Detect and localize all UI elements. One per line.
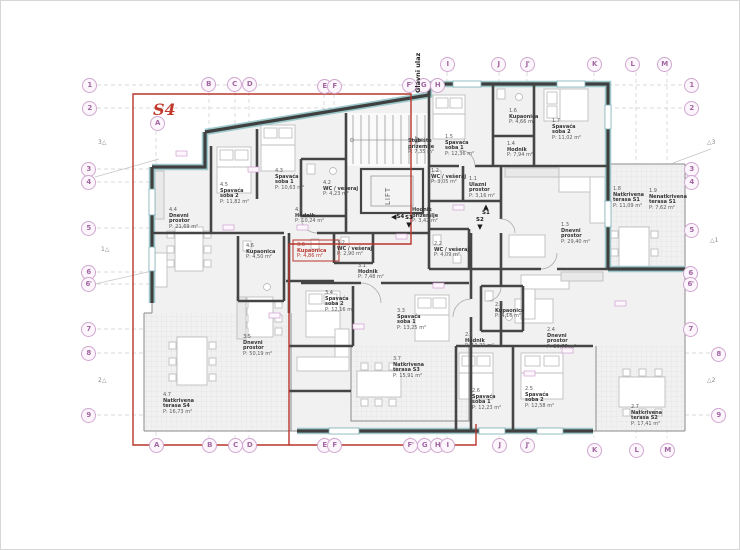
grid-number-8: 8 (711, 347, 726, 362)
grid-letter-J': J' (520, 57, 535, 72)
room-label-1.9: 1.9Nenatkrivena terasa S1P: 7,62 m² (649, 189, 685, 211)
room-label-1.1: 1.1Ulazni prostorP: 3,16 m² (469, 177, 505, 199)
section-marker-2: 2△ (98, 377, 106, 384)
unit-entrance-S1: ▲S1 (482, 204, 490, 217)
grid-number-2: 2 (82, 101, 97, 116)
grid-letter-J': J' (520, 438, 535, 453)
grid-letter-F': F' (403, 438, 418, 453)
room-label-1.8: 1.8Natkrivena terasa S1P: 11,09 m² (613, 187, 649, 209)
room-label-4.4: 4.4Dnevni prostorP: 21,69 m² (169, 208, 205, 230)
room-label-4.1: 4.1HodnikP: 10,24 m² (295, 208, 324, 225)
room-label-3.2: 3.2WC / vešerajP: 2,90 m² (337, 241, 372, 258)
grid-letter-M: M (660, 443, 675, 458)
grid-number-2: 2 (684, 101, 699, 116)
room-label-3.3: 3.3Spavaća soba 1P: 13,25 m² (397, 309, 433, 331)
grid-number-6': 6' (81, 277, 96, 292)
room-label-2.5: 2.5Spavaća soba 2P: 12,58 m² (525, 387, 561, 409)
room-label-2.4: 2.4Dnevni prostorP: 30,77 m² (547, 328, 583, 350)
grid-number-4: 4 (81, 175, 96, 190)
room-label-2.6: 2.6Spavaća soba 1P: 12,23 m² (472, 389, 508, 411)
grid-number-1: 1 (82, 78, 97, 93)
unit-s4-label: S4 (153, 100, 176, 119)
room-label-1.3: 1.3Dnevni prostorP: 29,40 m² (561, 223, 597, 245)
grid-number-7: 7 (683, 322, 698, 337)
grid-letter-K: K (587, 57, 602, 72)
grid-letter-F: F (327, 79, 342, 94)
grid-letter-B: B (202, 438, 217, 453)
section-marker-2: △2 (707, 377, 715, 384)
room-label-4.7: 4.7Natkrivena terasa S4P: 16,73 m² (163, 393, 199, 415)
floor-plan-drawing: S4 Glavni ulaz LIFT ABCDEFF'GHIJJ'KLMABC… (0, 0, 740, 550)
grid-letter-I: I (440, 438, 455, 453)
room-label-4.2: 4.2WC / vešerajP: 4,23 m² (323, 181, 358, 198)
room-label-4.6: 4.6KupaonicaP: 4,50 m² (246, 244, 275, 261)
grid-letter-C: C (227, 77, 242, 92)
room-label-4.5: 4.5Spavaća soba 2P: 11,82 m² (220, 183, 256, 205)
main-entrance-label: Glavni ulaz (414, 53, 422, 93)
unit-entrance-S3: S3▼ (405, 216, 413, 229)
grid-number-9: 9 (81, 408, 96, 423)
grid-letter-D: D (242, 438, 257, 453)
grid-letter-L: L (625, 57, 640, 72)
grid-letter-C: C (228, 438, 243, 453)
room-label-1.5: 1.5Spavaća soba 1P: 12,36 m² (445, 135, 481, 157)
unit-entrance-S2: S2▼ (476, 218, 484, 231)
grid-letter-B: B (201, 77, 216, 92)
room-label-3.7: 3.7Natkrivena terasa S3P: 15,91 m² (393, 357, 429, 379)
grid-letter-A: A (149, 438, 164, 453)
grid-letter-M: M (657, 57, 672, 72)
room-label-2.2: 2.2WC / vešerajP: 4,09 m² (434, 242, 469, 259)
core-room-label: Hodnik prizemljeP: 3,42 m² (412, 208, 448, 225)
grid-number-7: 7 (81, 322, 96, 337)
grid-number-5: 5 (684, 223, 699, 238)
room-label-1.7: 1.7Spavaća soba 2P: 11,02 m² (552, 119, 588, 141)
grid-letter-J: J (492, 438, 507, 453)
section-marker-3: 3△ (98, 139, 106, 146)
grid-letter-L: L (629, 443, 644, 458)
room-label-3.5: 3.5Dnevni prostorP: 50,19 m² (243, 335, 279, 357)
room-label-3.4: 3.4Spavaća soba 2P: 12,16 m² (325, 291, 361, 313)
grid-letter-J: J (491, 57, 506, 72)
room-label-3.6: 3.6KupaonicaP: 4,86 m² (297, 243, 326, 260)
grid-letter-K: K (587, 443, 602, 458)
core-room-label: Stubište prizemljeP: 7,35 m² (408, 139, 444, 156)
section-marker-1: △1 (710, 237, 718, 244)
unit-entrance-S4: ◀S4 (391, 209, 404, 225)
grid-letter-I: I (440, 57, 455, 72)
room-label-1.6: 1.6KupaonicaP: 4,66 m² (509, 109, 538, 126)
grid-number-6': 6' (683, 277, 698, 292)
grid-letter-H: H (430, 78, 445, 93)
room-label-1.2: 1.2WC / vešerajP: 3,05 m² (431, 169, 466, 186)
label-overlay: ABCDEFF'GHIJJ'KLMABCDEFF'GHIJJ'KLM123456… (1, 1, 740, 550)
grid-letter-D: D (242, 77, 257, 92)
section-marker-1: 1△ (101, 246, 109, 253)
room-label-2.3: 2.3KupaonicaP: 4,16 m² (495, 303, 524, 320)
room-label-2.7: 2.7Natkrivena terasa S2P: 17,41 m² (631, 405, 667, 427)
grid-number-8: 8 (81, 346, 96, 361)
room-label-3.1: 3.1HodnikP: 7,48 m² (358, 264, 384, 281)
grid-number-9: 9 (711, 408, 726, 423)
lift-label: LIFT (384, 187, 392, 205)
room-label-4.3: 4.3Spavaća soba 1P: 10,63 m² (275, 169, 311, 191)
grid-letter-F: F (327, 438, 342, 453)
grid-number-4: 4 (684, 175, 699, 190)
room-label-1.4: 1.4HodnikP: 7,94 m² (507, 142, 533, 159)
section-marker-3: △3 (707, 139, 715, 146)
grid-number-1: 1 (684, 78, 699, 93)
room-label-2.1: 2.1HodnikP: 11,21 m² (465, 333, 494, 350)
grid-number-5: 5 (81, 221, 96, 236)
